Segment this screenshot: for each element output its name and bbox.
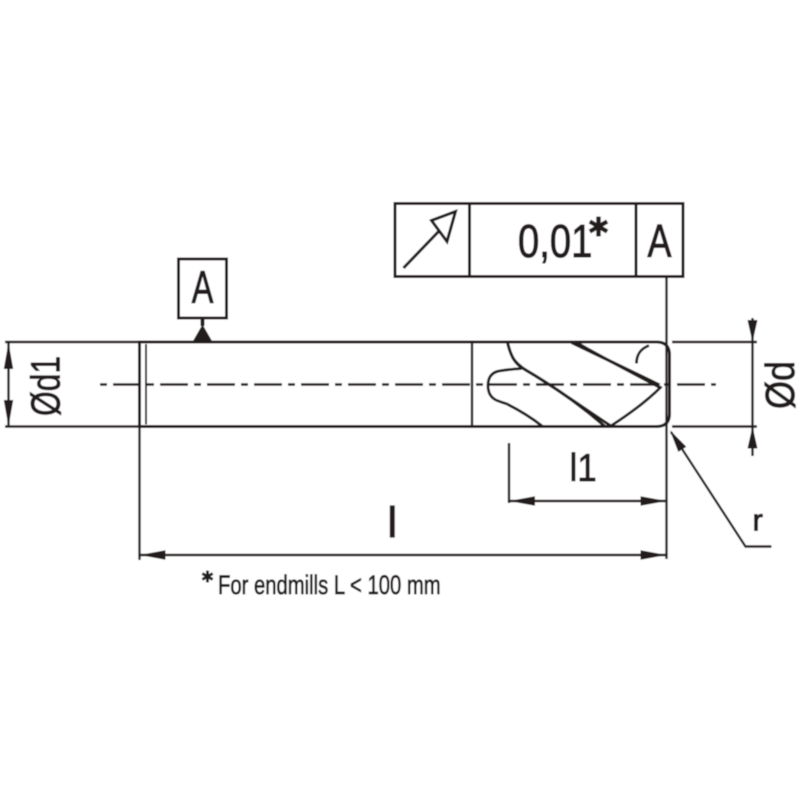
svg-text:For endmills L < 100 mm: For endmills L < 100 mm [218, 570, 441, 601]
svg-text:l: l [388, 499, 398, 547]
svg-text:A: A [192, 263, 214, 312]
svg-text:l1: l1 [570, 445, 597, 489]
svg-text:A: A [648, 216, 672, 267]
svg-text:Ød1: Ød1 [23, 356, 69, 416]
svg-text:r: r [753, 503, 763, 538]
svg-text:Ød: Ød [758, 361, 800, 409]
svg-text:0,01: 0,01 [518, 216, 592, 267]
